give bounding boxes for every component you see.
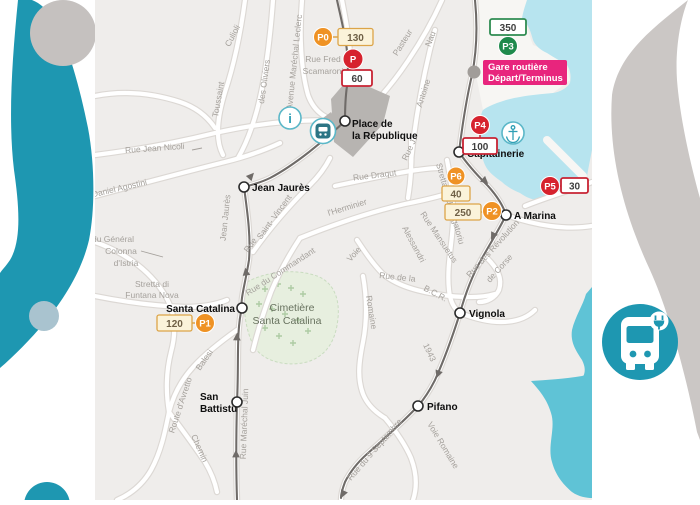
parking-p5: 30 P5 [541,177,589,196]
small-blue-dot [29,301,59,331]
stop-marker-a-marina [501,210,511,220]
stop-label-vignola: Vignola [469,309,505,320]
stop-label-san-battistu-2: Battistu [200,404,237,415]
svg-text:40: 40 [450,190,462,201]
svg-text:100: 100 [472,142,489,153]
electric-bus-icon [602,304,678,380]
right-decoration [602,0,700,440]
gray-circle [30,0,96,66]
street-label-rue-fred-2: Scamaroni [303,66,344,76]
stop-marker-pifano [413,401,423,411]
stop-label-place-2: la République [352,131,418,142]
street-label-colonna-1: du Général [92,234,134,244]
svg-text:P4: P4 [474,121,486,132]
page-canvas: Avenue Maréchal Leclerc Culioli Toussain… [0,0,700,500]
bottom-teal-dot [24,482,70,500]
stop-label-san-battistu-1: San [200,392,218,403]
bus-stop-icon [311,119,336,144]
stop-label-pifano: Pifano [427,402,458,413]
cemetery-label-2: Santa Catalina [253,315,322,327]
info-icon: i [279,107,301,129]
svg-text:P0: P0 [317,33,329,44]
stop-marker-santa-catalina [237,303,247,313]
parking-p1: 120 P1 [157,314,215,333]
gare-routiere-badge: Gare routière Départ/Terminus [483,60,567,85]
svg-text:P2: P2 [486,207,498,218]
anchor-icon [502,122,524,144]
left-decoration [0,0,96,500]
svg-text:60: 60 [351,74,363,85]
gare-route-dot [468,66,481,79]
stop-marker-vignola [455,308,465,318]
svg-text:P: P [350,55,357,66]
gare-label-1: Gare routière [488,62,548,73]
stop-marker-place [340,116,350,126]
stop-label-santa-catalina: Santa Catalina [166,304,235,315]
parking-p0: 130 P0 [314,28,374,47]
city-map: Avenue Maréchal Leclerc Culioli Toussain… [91,0,592,500]
svg-text:P3: P3 [502,42,514,53]
svg-text:i: i [288,111,292,126]
cemetery-label-1: Cimetière [270,302,315,314]
svg-text:130: 130 [347,33,364,44]
street-label-colonna-3: d'Istria [114,258,139,268]
stop-label-jean-jaures: Jean Jaurès [252,183,310,194]
stop-label-a-marina: A Marina [514,211,556,222]
street-label-funtana-1: Stretta di [135,279,169,289]
gare-label-2: Départ/Terminus [488,73,563,84]
svg-text:P5: P5 [544,182,556,193]
street-label-colonna-2: Colonna [105,246,137,256]
svg-text:P6: P6 [450,172,462,183]
svg-text:250: 250 [455,208,472,219]
svg-text:350: 350 [500,23,517,34]
plug-badge-icon [650,312,669,331]
svg-text:120: 120 [166,319,183,330]
street-label-rue-fred-1: Rue Fred [305,54,341,64]
stop-marker-jean-jaures [239,182,249,192]
street-label-funtana-2: Funtana Nova [125,290,179,300]
stop-label-place-1: Place de [352,119,393,130]
svg-text:P1: P1 [199,319,211,330]
svg-text:30: 30 [569,182,581,193]
parking-p2: 250 P2 [445,202,502,221]
